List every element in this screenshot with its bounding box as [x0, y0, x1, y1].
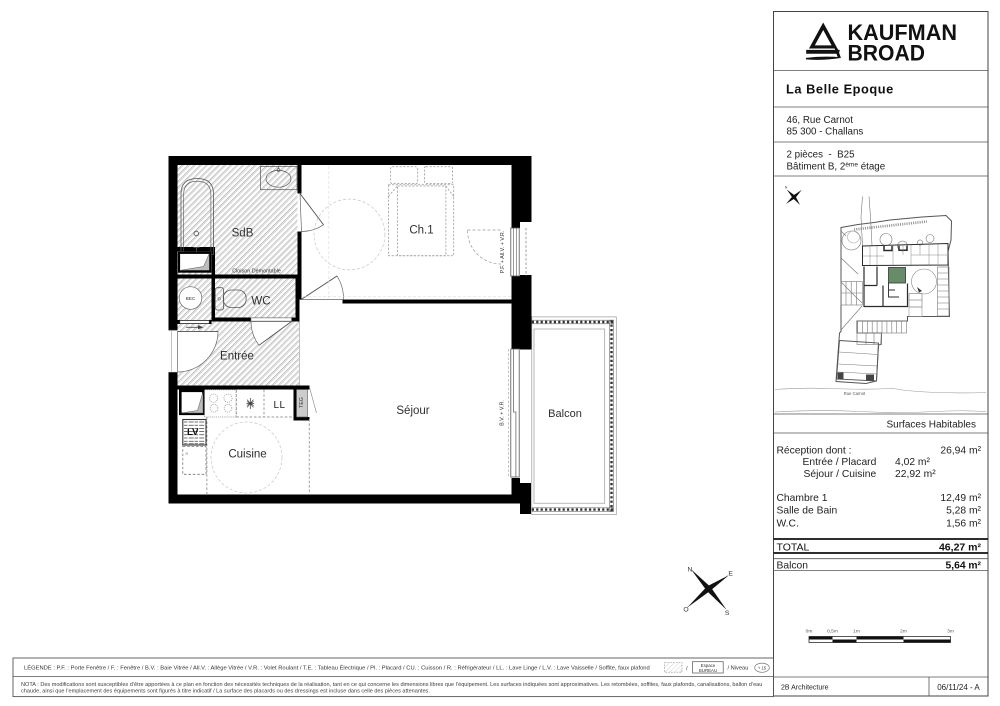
svg-text:Balcon: Balcon [777, 560, 809, 571]
svg-text:O: O [683, 607, 688, 614]
svg-text:+ 15: + 15 [758, 666, 767, 671]
svg-text:N: N [688, 567, 693, 574]
svg-text:La Belle Epoque: La Belle Epoque [786, 82, 894, 97]
svg-text:NOTA : Des modifications son: NOTA : Des modifications sont susceptibl… [21, 682, 762, 688]
svg-text:Cuisine: Cuisine [228, 449, 266, 461]
svg-text:/ Niveau: / Niveau [728, 665, 749, 671]
svg-text:R: R [186, 452, 189, 456]
svg-text:/: / [686, 666, 688, 672]
svg-text:Entrée: Entrée [220, 351, 254, 363]
svg-text:0m: 0m [806, 629, 813, 635]
svg-text:TEG: TEG [299, 397, 305, 408]
svg-text:Bâtiment B, 2ème étage: Bâtiment B, 2ème étage [787, 162, 886, 173]
svg-text:2B Architecture: 2B Architecture [781, 685, 829, 692]
svg-text:4,02 m²: 4,02 m² [895, 457, 930, 468]
svg-text:BEC: BEC [186, 296, 196, 301]
svg-text:LL: LL [274, 400, 286, 411]
svg-text:46, Rue Carnot: 46, Rue Carnot [787, 115, 854, 126]
svg-text:0,5m: 0,5m [827, 629, 838, 635]
svg-text:Ch.1: Ch.1 [409, 225, 433, 237]
svg-text:2m: 2m [900, 629, 907, 635]
svg-text:Surfaces Habitables: Surfaces Habitables [887, 420, 977, 431]
svg-text:N: N [785, 185, 788, 189]
svg-text:3m: 3m [947, 629, 954, 635]
svg-text:BROAD: BROAD [848, 41, 926, 66]
svg-text:5,28 m²: 5,28 m² [946, 506, 981, 517]
svg-text:TOTAL: TOTAL [777, 542, 810, 554]
svg-text:1m: 1m [853, 629, 860, 635]
svg-text:BUREAU: BUREAU [699, 668, 717, 673]
svg-text:E: E [728, 571, 733, 578]
svg-text:2 pièces - B25: 2 pièces - B25 [787, 150, 856, 161]
svg-text:46,27 m²: 46,27 m² [939, 542, 982, 554]
svg-text:W.C.: W.C. [777, 519, 799, 530]
svg-text:Rue Carnot: Rue Carnot [844, 391, 866, 396]
svg-text:LV: LV [187, 427, 199, 438]
svg-text:S: S [725, 610, 730, 617]
svg-text:06/11/24 - A: 06/11/24 - A [937, 683, 980, 692]
svg-text:P.F. + All.V. + V.R.: P.F. + All.V. + V.R. [500, 231, 506, 274]
svg-text:26,94 m²: 26,94 m² [940, 446, 981, 457]
svg-text:85 300 - Challans: 85 300 - Challans [787, 127, 864, 138]
svg-text:12,49 m²: 12,49 m² [940, 493, 981, 504]
svg-text:Chambre 1: Chambre 1 [777, 493, 828, 504]
svg-text:B.V. + V.R.: B.V. + V.R. [500, 400, 506, 426]
svg-text:LÉGENDE : P.F. : Porte Fenêtre: LÉGENDE : P.F. : Porte Fenêtre / F. : Fe… [24, 664, 650, 671]
svg-text:Réception dont :: Réception dont : [777, 446, 852, 457]
svg-text:Cloison Démontable: Cloison Démontable [232, 268, 281, 274]
svg-text:1,56 m²: 1,56 m² [946, 519, 981, 530]
svg-text:chaude, ainsi que l’emplacemen: chaude, ainsi que l’emplacement des équi… [21, 688, 430, 694]
svg-text:Séjour / Cuisine: Séjour / Cuisine [804, 469, 877, 480]
svg-text:Entrée / Placard: Entrée / Placard [803, 457, 877, 468]
svg-text:SdB: SdB [232, 228, 254, 240]
svg-text:5,64 m²: 5,64 m² [946, 560, 982, 571]
svg-text:Séjour: Séjour [396, 405, 429, 417]
svg-text:WC: WC [251, 296, 270, 308]
svg-text:22,92 m²: 22,92 m² [895, 469, 936, 480]
svg-text:Balcon: Balcon [548, 408, 582, 420]
svg-text:Salle de Bain: Salle de Bain [777, 506, 838, 517]
